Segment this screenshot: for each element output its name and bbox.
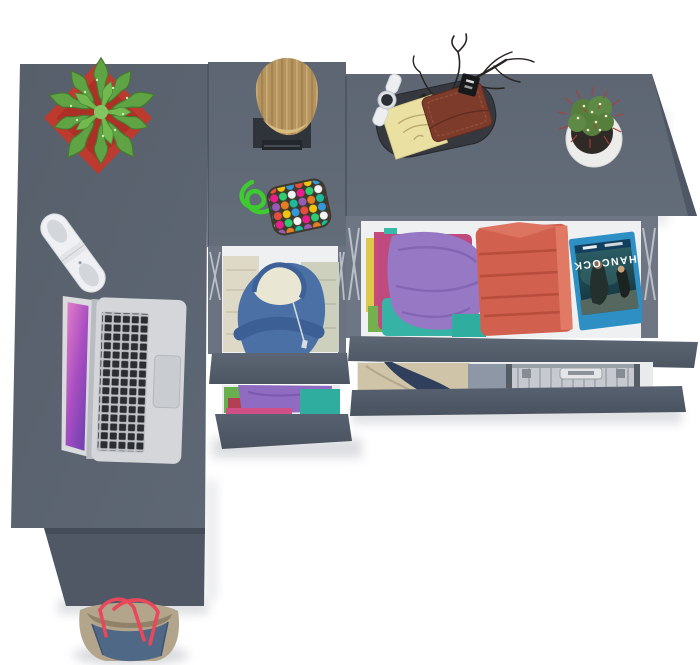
desk-front-panel bbox=[44, 528, 205, 606]
laptop bbox=[57, 296, 187, 464]
hoodie-drawer-contents bbox=[223, 256, 339, 354]
middle-drawer1-front bbox=[209, 353, 350, 384]
right-drawer2-contents bbox=[358, 362, 640, 390]
log-sculpture bbox=[253, 58, 318, 150]
clothes-stack-left bbox=[366, 228, 486, 338]
tote-bag bbox=[79, 599, 179, 661]
desk-edge-shade bbox=[44, 528, 205, 534]
right-drawer2-front bbox=[350, 386, 686, 416]
product-render: HANCOCK bbox=[0, 0, 700, 665]
scene-canvas: HANCOCK bbox=[0, 0, 700, 665]
right-drawer1-contents: HANCOCK bbox=[366, 220, 645, 338]
laptop-trackpad bbox=[153, 355, 181, 408]
aluminum-briefcase bbox=[506, 364, 640, 390]
middle-drawer2-clothes bbox=[224, 385, 340, 414]
bluray-case: HANCOCK bbox=[569, 231, 646, 330]
red-towel-stack bbox=[475, 220, 573, 337]
